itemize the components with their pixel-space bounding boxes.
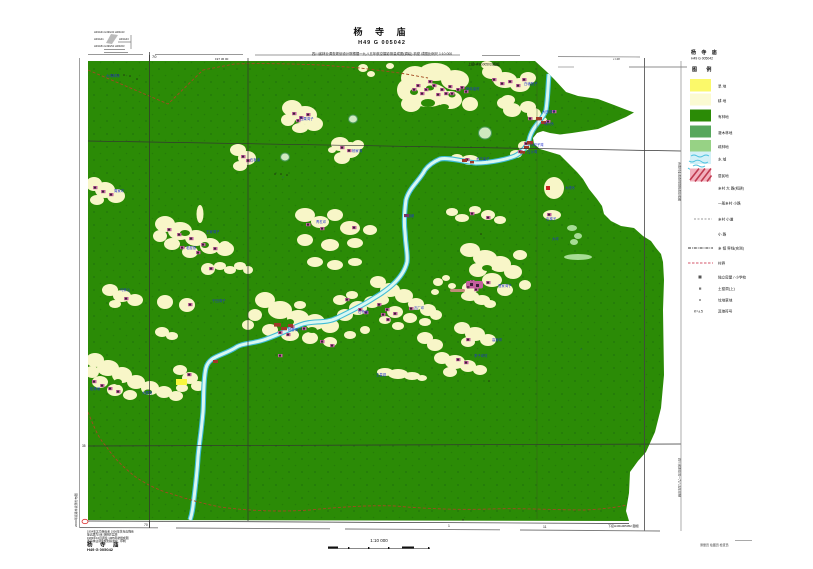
svg-text:大湾头: 大湾头 bbox=[565, 185, 576, 190]
svg-text:H49G51 H49G52 H49G53: H49G51 H49G52 H49G53 bbox=[94, 44, 125, 48]
svg-text:∴: ∴ bbox=[580, 347, 582, 351]
svg-text:杨柳湾子: 杨柳湾子 bbox=[288, 327, 302, 332]
svg-text:有林地: 有林地 bbox=[718, 114, 729, 119]
svg-text:大田坝子: 大田坝子 bbox=[542, 109, 556, 114]
svg-text:老屋基: 老屋基 bbox=[186, 245, 197, 250]
svg-text:乡村 小道: 乡村 小道 bbox=[718, 217, 734, 222]
svg-text:H49G41: H49G41 bbox=[94, 37, 104, 41]
svg-text:1:10 000: 1:10 000 bbox=[370, 538, 388, 543]
svg-text:石梯子: 石梯子 bbox=[546, 216, 557, 221]
svg-text:白沙湾: 白沙湾 bbox=[527, 149, 538, 154]
svg-text:大湾林场: 大湾林场 bbox=[106, 73, 120, 78]
svg-text:乡村 大 路(机耕): 乡村 大 路(机耕) bbox=[718, 186, 744, 191]
svg-text:龙王庙子: 龙王庙子 bbox=[476, 156, 490, 161]
svg-text:干田湾子: 干田湾子 bbox=[212, 298, 226, 303]
svg-text:周家坪: 周家坪 bbox=[114, 188, 125, 193]
svg-text:1: 1 bbox=[448, 524, 450, 528]
svg-text:2000年版森林资源分布图: 2000年版森林资源分布图 bbox=[73, 493, 78, 527]
svg-text:四川省测绘局一九八五年印制: 四川省测绘局一九八五年印制 bbox=[678, 458, 683, 497]
svg-text:河口头: 河口头 bbox=[544, 121, 555, 126]
svg-text:H49 G 005042: H49 G 005042 bbox=[691, 57, 713, 61]
svg-text:11: 11 bbox=[543, 525, 547, 529]
svg-text:35: 35 bbox=[82, 444, 86, 448]
svg-text:居民地: 居民地 bbox=[718, 173, 729, 178]
svg-text:石桥河: 石桥河 bbox=[358, 309, 369, 314]
svg-text:疏林地: 疏林地 bbox=[718, 144, 729, 149]
svg-text:70: 70 bbox=[144, 523, 148, 527]
svg-text:H49G31 H49G32 H49G33: H49G31 H49G32 H49G33 bbox=[94, 30, 125, 34]
svg-text:大坪: 大坪 bbox=[552, 236, 559, 241]
svg-text:旱 地: 旱 地 bbox=[718, 84, 727, 89]
svg-text:松林坡: 松林坡 bbox=[90, 386, 101, 391]
svg-text:沙坝子湾: 沙坝子湾 bbox=[530, 142, 544, 147]
svg-text:李子坪村: 李子坪村 bbox=[474, 353, 488, 358]
svg-text:其他符号: 其他符号 bbox=[718, 309, 733, 314]
svg-text:耕 地: 耕 地 bbox=[718, 98, 727, 103]
svg-text:村界: 村界 bbox=[718, 261, 726, 266]
svg-text:马家山: 马家山 bbox=[120, 287, 131, 292]
svg-text:白墙院子: 白墙院子 bbox=[524, 81, 538, 86]
svg-text:K=±.5: K=±.5 bbox=[694, 310, 703, 314]
svg-text:197 36 00: 197 36 00 bbox=[215, 57, 229, 61]
svg-text:高家坪: 高家坪 bbox=[492, 337, 503, 342]
svg-text:下接H49G005052 图幅: 下接H49G005052 图幅 bbox=[608, 523, 639, 528]
svg-text:白果湾子: 白果湾子 bbox=[300, 116, 314, 121]
svg-text:小 路: 小 路 bbox=[718, 232, 727, 237]
svg-text:图 例: 图 例 bbox=[692, 66, 715, 73]
svg-text:测量员 绘图员 检查员: 测量员 绘图员 检查员 bbox=[700, 542, 729, 547]
svg-text:独立房屋 / 小学校: 独立房屋 / 小学校 bbox=[718, 275, 747, 280]
svg-text:杨寺庙村: 杨寺庙村 bbox=[466, 86, 480, 91]
svg-text:上接H49G005032图幅: 上接H49G005032图幅 bbox=[468, 62, 501, 67]
svg-text:灌木林地: 灌木林地 bbox=[718, 130, 733, 135]
svg-text:∴: ∴ bbox=[282, 175, 284, 179]
svg-text:青杠坪: 青杠坪 bbox=[316, 219, 327, 224]
svg-text:玉皇观: 玉皇观 bbox=[376, 372, 387, 377]
svg-text:瓦厂坪: 瓦厂坪 bbox=[414, 305, 425, 310]
svg-text:四川省林业调查规划设计院根据一九八五年航空摄影测量成图(调绘: 四川省林业调查规划设计院根据一九八五年航空摄影测量成图(调绘) 机密 成图比例尺… bbox=[312, 51, 452, 56]
svg-text:大屋场: 大屋场 bbox=[142, 390, 153, 395]
svg-text:H49 G 005042: H49 G 005042 bbox=[87, 547, 114, 552]
svg-text:杨 寺 庙: 杨 寺 庙 bbox=[691, 49, 719, 56]
svg-text:土窑洞(上): 土窑洞(上) bbox=[718, 286, 735, 291]
svg-text:茶园坡: 茶园坡 bbox=[404, 213, 415, 218]
svg-text:H49 G 005042: H49 G 005042 bbox=[358, 40, 406, 46]
svg-text:杨 寺 庙: 杨 寺 庙 bbox=[353, 26, 410, 37]
svg-text:水 域: 水 域 bbox=[718, 157, 727, 162]
svg-text:70: 70 bbox=[152, 54, 157, 59]
svg-text:一般乡村 小路: 一般乡村 小路 bbox=[718, 201, 741, 206]
svg-text:坟地草地: 坟地草地 bbox=[718, 298, 733, 303]
svg-text:杨家湾: 杨家湾 bbox=[352, 148, 363, 153]
svg-text:x 138: x 138 bbox=[613, 57, 620, 61]
svg-text:西南林业调查规划院调绘成图: 西南林业调查规划院调绘成图 bbox=[678, 162, 683, 201]
svg-text:王家湾子: 王家湾子 bbox=[206, 229, 220, 234]
svg-text:H49G43: H49G43 bbox=[119, 37, 129, 41]
svg-text:乡 镇 界线(实测): 乡 镇 界线(实测) bbox=[718, 246, 744, 251]
svg-text:曹家湾子: 曹家湾子 bbox=[498, 283, 512, 288]
svg-text:石板溪: 石板溪 bbox=[250, 157, 261, 162]
